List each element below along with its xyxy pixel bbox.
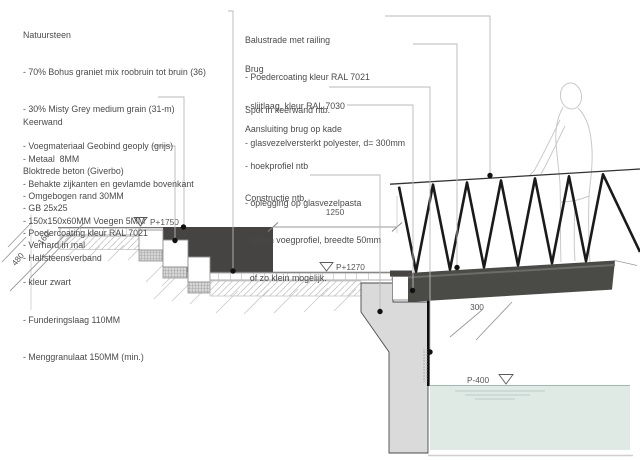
annotation-line: - Funderingslaag 110MM [23,314,144,326]
annotation-title: Constructie ntb. [245,192,307,204]
annotation-line: - GB 25x25 [23,202,144,214]
annotation-line: of zo klein mogelijk. [245,272,381,284]
annotation-title: Aansluiting brug op kade [245,123,381,135]
quay-wall [361,283,430,453]
annotation-bloktrede: Bloktrede beton (Giverbo) - GB 25x25 - V… [23,140,144,376]
level-triangle-water [499,375,513,385]
annotation-title: Bloktrede beton (Giverbo) [23,165,144,177]
balustrade-railing [390,169,640,272]
annotation-line: - Menggranulaat 150MM (min.) [23,351,144,363]
annotation-title: Natuursteen [23,29,206,41]
hoekprofiel-joint [393,277,409,301]
section-drawing-page: 1250 300 160 480 P+1750 P+1270 P-400 [0,0,640,460]
deck-break-line [615,261,637,266]
annotation-line: - 70% Bohus graniet mix roobruin tot bru… [23,66,206,78]
annotation-line: - kleur zwart [23,276,144,288]
annotation-title: Brug [245,63,405,75]
dim-deck-label: 300 [470,302,484,312]
water [428,386,633,456]
bridge-deck [390,261,637,303]
annotation-line: - Verhard in mal [23,239,144,251]
annotation-line: - stalen voegprofiel, breedte 50mm [245,234,381,246]
railing-zigzag [399,174,640,271]
annotation-title: Keerwand [23,116,148,128]
annotation-constructie: Constructie ntb. [245,167,307,217]
level-water-label: P-400 [467,375,490,385]
